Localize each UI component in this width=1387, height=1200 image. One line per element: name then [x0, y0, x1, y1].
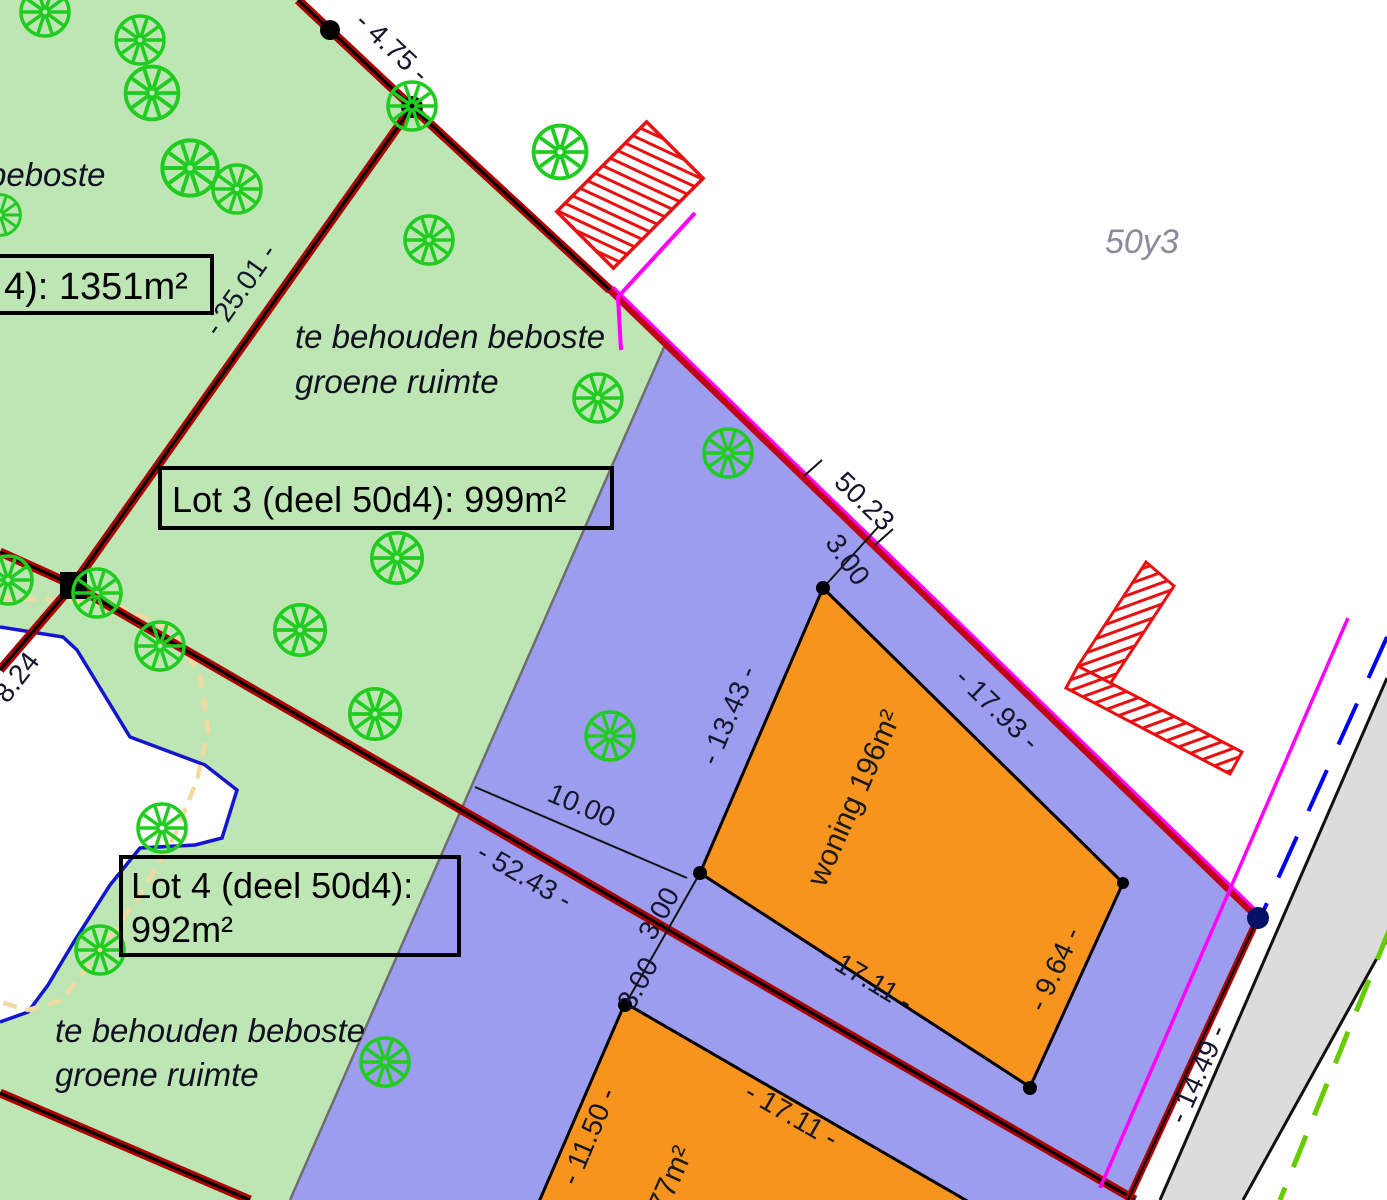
cadastral-plan: - 4.75 - - 25.01 - 50.23 3.00 8.24 - 13.…	[0, 0, 1387, 1200]
parcel-ref-label: 50y3	[1105, 223, 1179, 261]
hatched-structure-right	[1066, 562, 1242, 774]
hatched-structure-top	[557, 122, 703, 268]
note-bottom-line1: te behouden beboste	[55, 1012, 365, 1049]
tree-icon	[534, 126, 587, 179]
note-top-line1: te behouden beboste	[295, 318, 605, 355]
lot4-label-line2: 992m²	[131, 909, 233, 950]
plan-canvas: - 4.75 - - 25.01 - 50.23 3.00 8.24 - 13.…	[0, 0, 1387, 1200]
woodland-partial-label: beboste	[0, 156, 105, 193]
note-bottom-line2: groene ruimte	[55, 1056, 259, 1093]
lot4-label-line1: Lot 4 (deel 50d4):	[131, 865, 413, 906]
note-top-line2: groene ruimte	[295, 363, 499, 400]
lot2-label: 4): 1351m²	[4, 266, 188, 308]
lot3-label: Lot 3 (deel 50d4): 999m²	[172, 479, 566, 520]
